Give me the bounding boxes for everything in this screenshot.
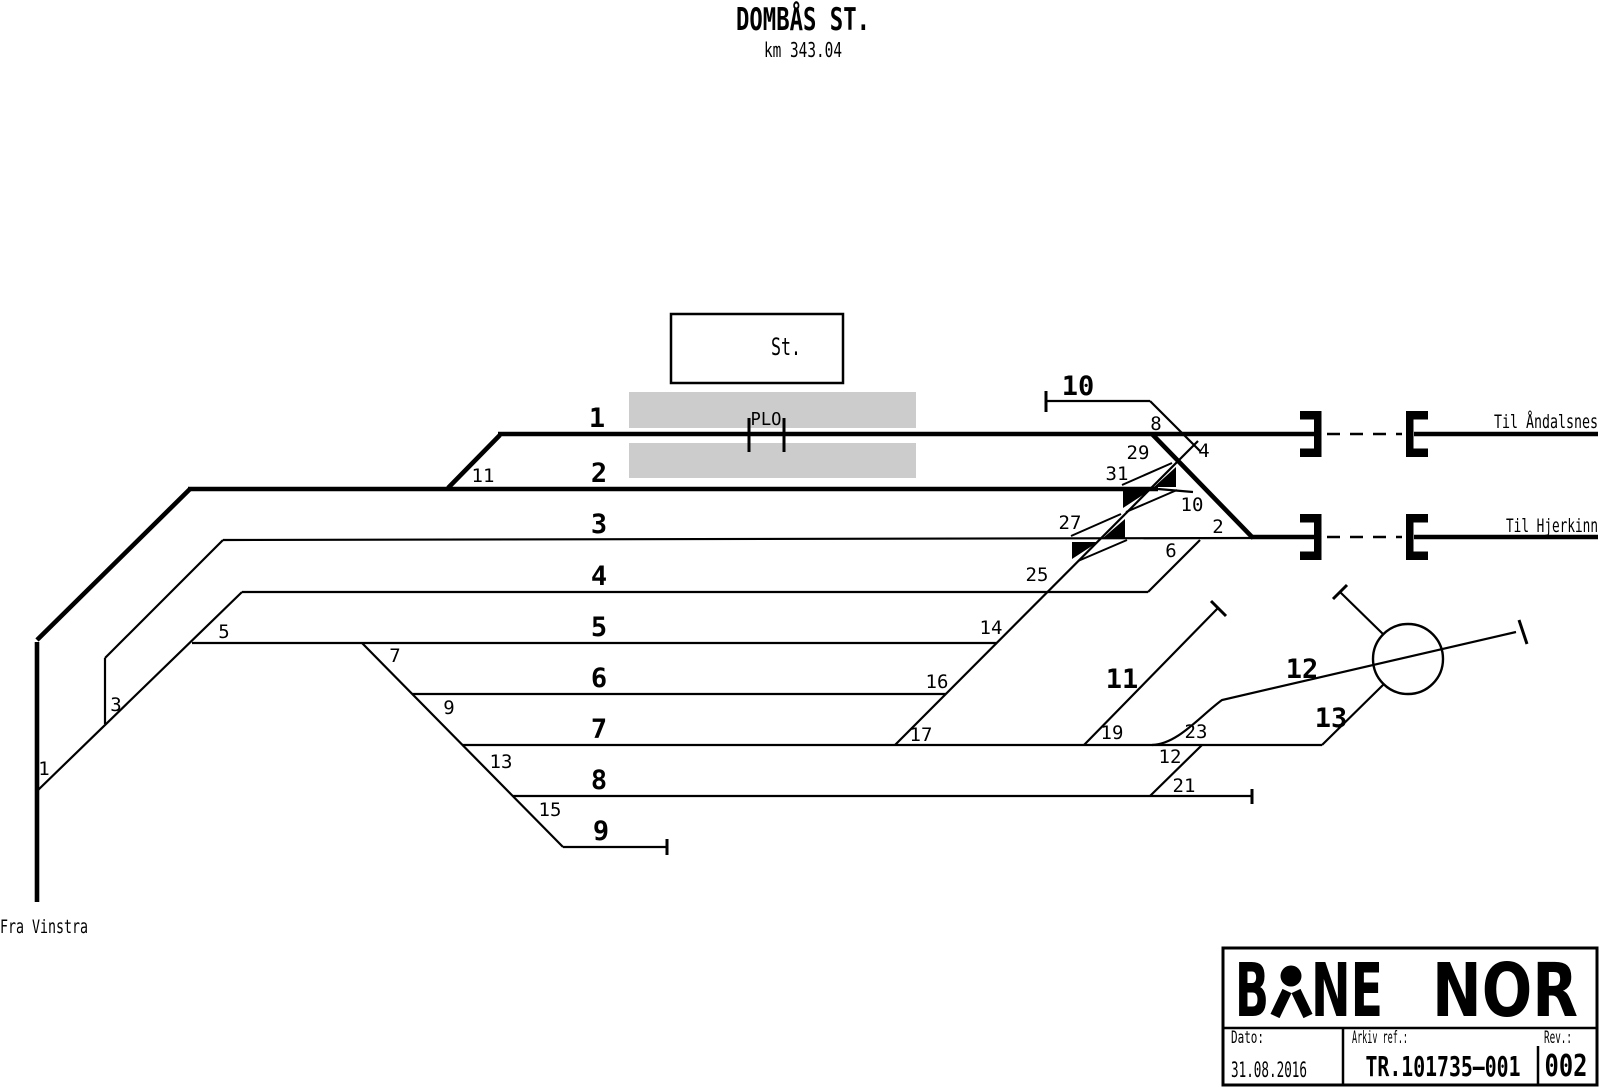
block-bracket <box>1300 411 1322 420</box>
logo-letters-ne: NE <box>1311 948 1383 1034</box>
block-bracket <box>1406 411 1428 420</box>
page-km: km 343.04 <box>764 38 842 62</box>
switch-label-12: 12 <box>1159 746 1182 768</box>
track-number-1: 1 <box>589 403 605 434</box>
track-numbers: 1 2 3 4 5 6 7 8 9 10 11 12 13 <box>589 371 1347 847</box>
plo-label: PLO <box>751 409 782 430</box>
dest-andalsnes-label: Til Åndalsnes <box>1494 410 1598 433</box>
switch-label-29: 29 <box>1127 442 1150 464</box>
track-number-3: 3 <box>591 509 607 540</box>
track-number-2: 2 <box>591 458 607 489</box>
revision-label: Rev.: <box>1544 1028 1572 1048</box>
logo-letter-b: B <box>1235 948 1269 1034</box>
switch-label-1: 1 <box>38 758 49 780</box>
block-bracket <box>1300 514 1322 523</box>
switch-label-6: 6 <box>1165 540 1176 562</box>
switch-label-9: 9 <box>443 697 454 719</box>
track-number-12: 12 <box>1286 654 1319 685</box>
archive-ref-label: Arkiv ref.: <box>1352 1028 1408 1048</box>
track-number-7: 7 <box>591 714 607 745</box>
block-bracket <box>1406 449 1428 458</box>
track-number-9: 9 <box>593 816 609 847</box>
switch-label-25: 25 <box>1026 564 1049 586</box>
turntable-circle <box>1373 624 1443 694</box>
logo-letters-nor: NOR <box>1432 948 1578 1034</box>
switch-label-2: 2 <box>1212 516 1223 538</box>
ladder-west-diagonal <box>36 592 242 792</box>
archive-ref-value: TR.101735–001 <box>1366 1050 1521 1083</box>
switch-label-15: 15 <box>539 799 562 821</box>
slip-triangle <box>1103 519 1125 538</box>
dest-hjerkinn-label: Til Hjerkinn <box>1506 515 1598 537</box>
block-bracket <box>1300 552 1322 561</box>
track-number-5: 5 <box>591 612 607 643</box>
logo-figure-head-icon <box>1281 966 1302 987</box>
title-block: B NE NOR Dato: 31.08.2016 Arkiv ref.: TR… <box>1223 948 1597 1085</box>
switch-label-23: 23 <box>1185 721 1208 743</box>
page-title: DOMBÅS ST. <box>736 1 870 38</box>
revision-value: 002 <box>1545 1049 1588 1084</box>
switch-label-17: 17 <box>910 724 933 746</box>
track-schematic-page: St. <box>0 0 1600 1087</box>
header: DOMBÅS ST. km 343.04 <box>736 1 870 62</box>
switch-label-16: 16 <box>926 671 949 693</box>
track-number-10: 10 <box>1062 371 1095 402</box>
switch-label-5: 5 <box>218 621 229 643</box>
track-12-end-tick <box>1519 620 1527 644</box>
station-building: St. <box>671 314 843 383</box>
switch-label-7: 7 <box>389 645 400 667</box>
switch-label-11: 11 <box>472 465 495 487</box>
switch-label-14: 14 <box>980 617 1003 639</box>
switch-label-8: 8 <box>1150 413 1161 435</box>
switch-label-10: 10 <box>1181 494 1204 516</box>
mainline-left-diagonal <box>37 489 190 640</box>
dombas-track-diagram: St. <box>0 0 1600 1087</box>
station-box <box>671 314 843 383</box>
switch-label-19: 19 <box>1101 722 1124 744</box>
track-number-11: 11 <box>1106 664 1139 695</box>
track-number-4: 4 <box>591 561 607 592</box>
switch-label-21: 21 <box>1173 775 1196 797</box>
platform-lower <box>629 443 916 478</box>
block-bracket <box>1406 552 1428 561</box>
switch-label-31: 31 <box>1106 463 1129 485</box>
switch-label-13: 13 <box>490 751 513 773</box>
block-bracket <box>1406 514 1428 523</box>
station-box-label: St. <box>771 333 801 361</box>
switch-label-3: 3 <box>110 694 121 716</box>
date-value: 31.08.2016 <box>1231 1058 1307 1082</box>
slip-triangle <box>1072 542 1098 559</box>
switch-label-27: 27 <box>1059 512 1082 534</box>
date-label: Dato: <box>1231 1028 1264 1048</box>
block-bracket <box>1300 449 1322 458</box>
track-number-8: 8 <box>591 765 607 796</box>
switch-label-4: 4 <box>1198 440 1209 462</box>
slip-triangle <box>1123 491 1149 508</box>
block-brackets <box>1300 411 1428 560</box>
dest-vinstra-label: Fra Vinstra <box>0 916 88 938</box>
track-number-6: 6 <box>591 663 607 694</box>
turntable-north-stub <box>1340 592 1384 635</box>
track-number-13: 13 <box>1315 703 1348 734</box>
